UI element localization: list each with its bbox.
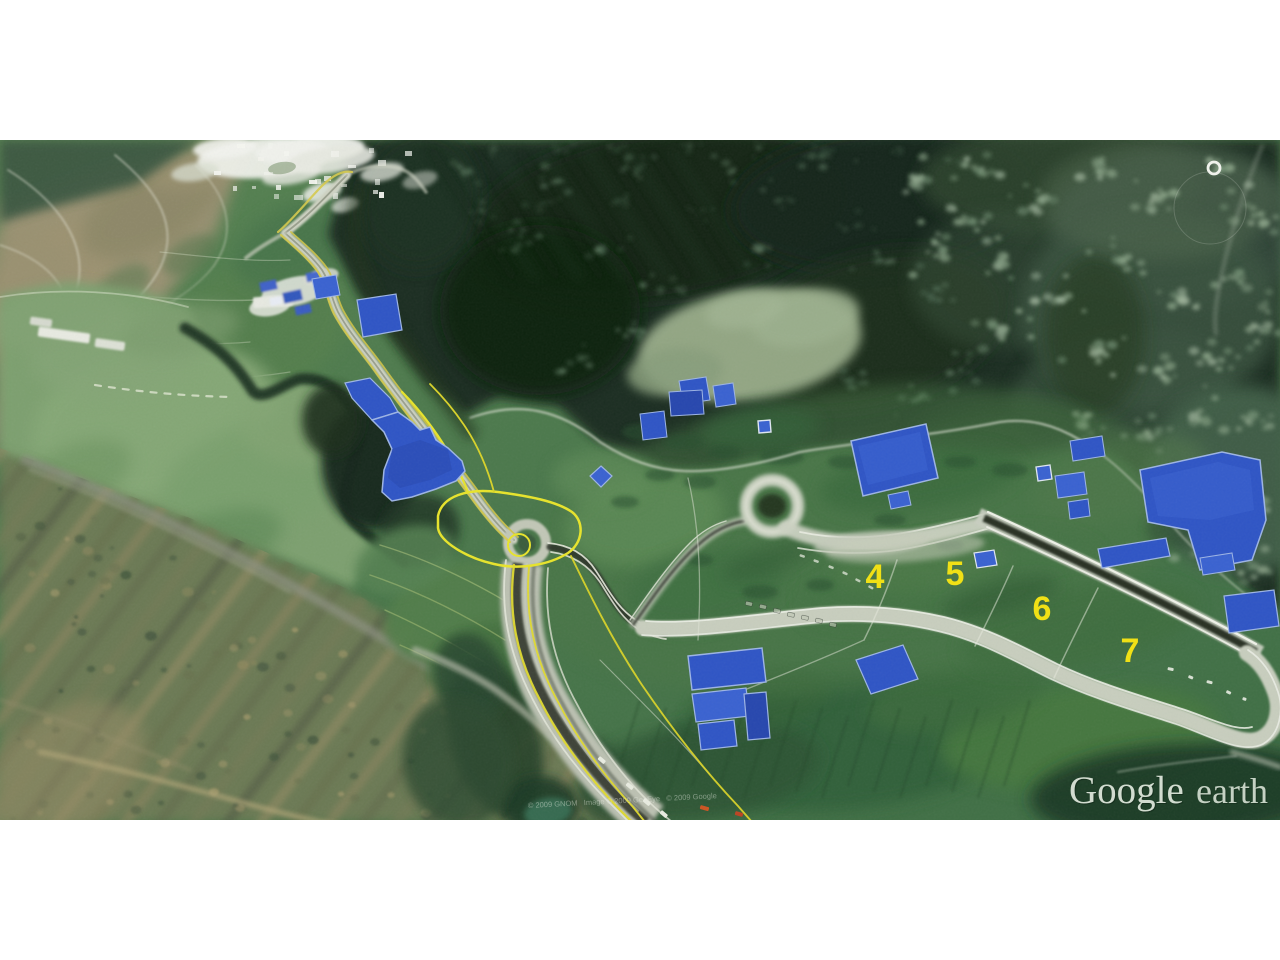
svg-text:Google: Google xyxy=(1069,769,1184,812)
svg-text:earth: earth xyxy=(1196,771,1268,811)
